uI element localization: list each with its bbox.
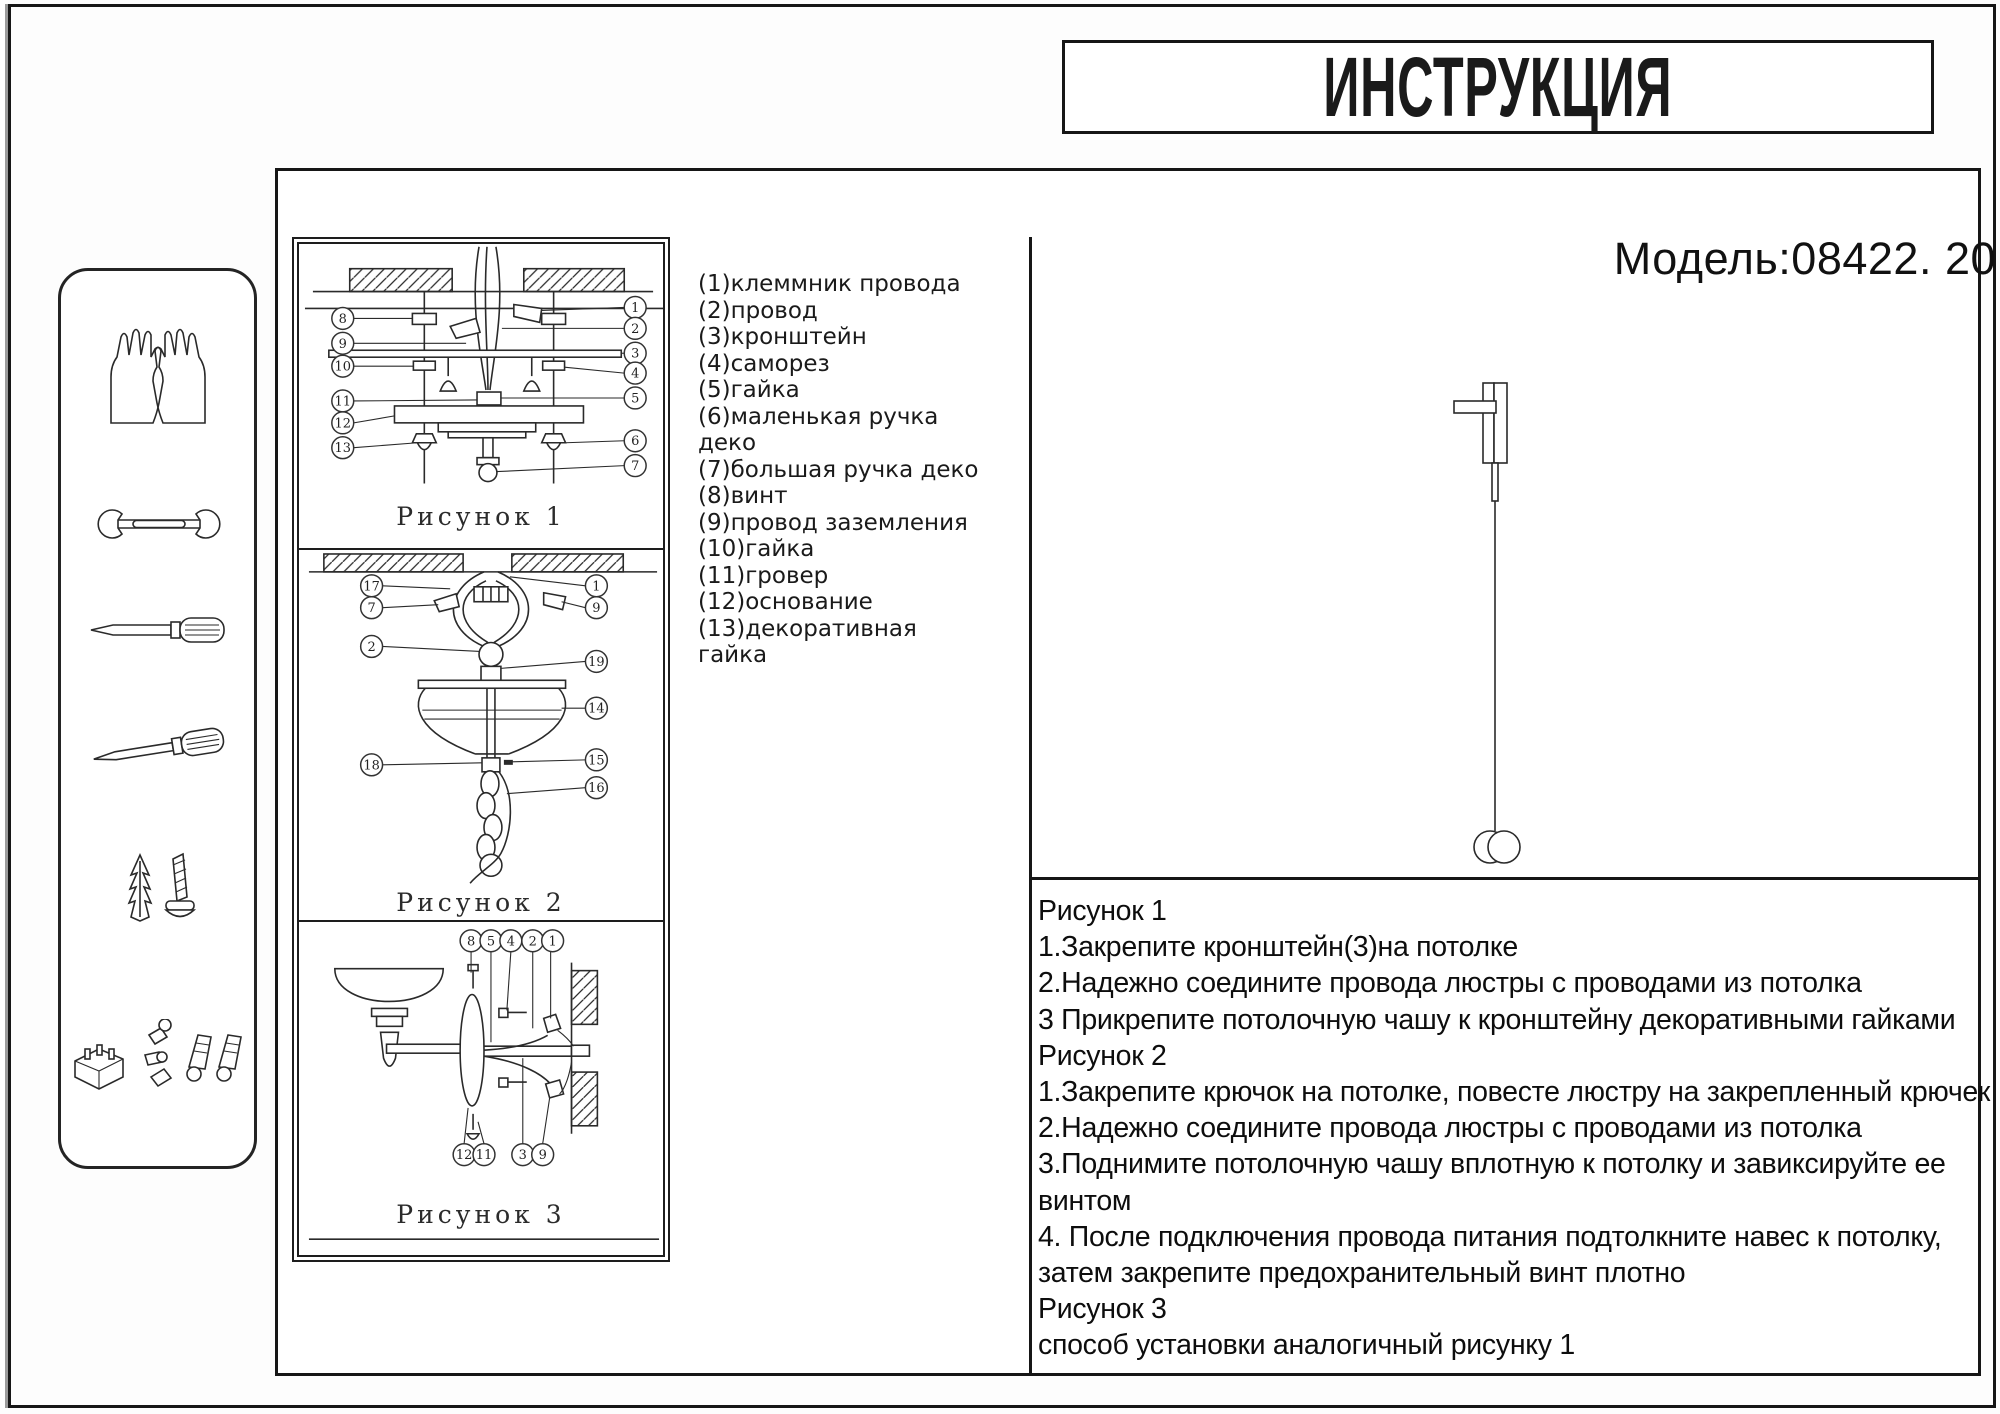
callout: 3 xyxy=(631,347,639,362)
callout: 10 xyxy=(335,360,351,375)
callout: 5 xyxy=(487,934,495,949)
vertical-divider xyxy=(1029,237,1032,1373)
part-line: деко xyxy=(698,430,1028,457)
callout: 12 xyxy=(335,416,351,431)
chain xyxy=(470,758,513,883)
canopy-base xyxy=(394,406,583,482)
parts-list: (1)клеммник провода (2)провод (3)кронште… xyxy=(698,271,1028,669)
callout: 9 xyxy=(592,601,600,616)
figure-3-caption: Рисунок 3 xyxy=(299,1200,663,1229)
callouts-bottom: 12 11 3 9 xyxy=(453,1144,553,1166)
instruction-line: способ установки аналогичный рисунку 1 xyxy=(1038,1327,1978,1363)
callout: 16 xyxy=(588,781,604,796)
installation-instructions: Рисунок 1 1.Закрепите кронштейн(3)на пот… xyxy=(1038,893,1978,1364)
figure-1-caption: Рисунок 1 xyxy=(299,502,663,531)
figure-2: 17 7 2 18 1 9 19 14 15 16 xyxy=(299,548,663,920)
instruction-line: 3.Поднимите потолочную чашу вплотную к п… xyxy=(1038,1146,1978,1182)
callouts-top: 8 5 4 2 1 xyxy=(460,930,563,952)
callout: 12 xyxy=(456,1148,472,1163)
callout: 2 xyxy=(631,322,639,337)
callout: 4 xyxy=(631,367,639,382)
part-line: (11)гровер xyxy=(698,563,1028,590)
callouts-left: 8 9 10 11 12 13 xyxy=(332,307,354,458)
instruction-line: Рисунок 1 xyxy=(1038,893,1978,929)
callouts-right: 1 9 19 14 15 16 xyxy=(585,575,607,799)
callout: 1 xyxy=(631,301,639,316)
hook-bracket xyxy=(434,572,565,680)
part-line: (1)клеммник провода xyxy=(698,271,1028,298)
instruction-line: 4. После подключения провода питания под… xyxy=(1038,1219,1978,1255)
part-line: (8)винт xyxy=(698,483,1028,510)
part-line: (13)декоративная xyxy=(698,616,1028,643)
ceiling-hatch xyxy=(309,554,657,572)
callout: 17 xyxy=(363,579,379,594)
callout: 6 xyxy=(631,434,639,449)
callout: 2 xyxy=(367,640,375,655)
callout: 9 xyxy=(539,1148,547,1163)
flat-screwdriver-icon xyxy=(87,613,229,647)
part-line: (6)маленькая ручка xyxy=(698,404,1028,431)
callout: 9 xyxy=(339,337,347,352)
callout: 7 xyxy=(367,601,375,616)
part-line: (10)гайка xyxy=(698,536,1028,563)
title-box: ИНСТРУКЦИЯ xyxy=(1062,40,1934,134)
figure-3: 8 5 4 2 1 12 11 3 9 xyxy=(299,920,663,1253)
part-line: (7)большая ручка деко xyxy=(698,457,1028,484)
part-line: (2)провод xyxy=(698,298,1028,325)
callout: 1 xyxy=(549,934,557,949)
instruction-line: Рисунок 2 xyxy=(1038,1038,1978,1074)
instruction-line: 1.Закрепите кронштейн(3)на потолке xyxy=(1038,929,1978,965)
callout: 8 xyxy=(467,934,475,949)
mounting-hardware-icon xyxy=(67,1019,249,1099)
instruction-line: 2.Надежно соедините провода люстры с про… xyxy=(1038,965,1978,1001)
instruction-line: затем закрепите предохранительный винт п… xyxy=(1038,1255,1978,1291)
callout: 18 xyxy=(363,758,379,773)
callout: 15 xyxy=(588,753,604,768)
gloves-icon xyxy=(97,319,219,429)
callout: 19 xyxy=(588,655,604,670)
callout: 4 xyxy=(507,934,515,949)
wrench-icon xyxy=(93,503,225,545)
callout: 1 xyxy=(592,579,600,594)
figures-box: 8 9 10 11 12 13 1 2 3 4 5 xyxy=(292,237,670,1262)
bracket xyxy=(329,350,621,405)
figure-1: 8 9 10 11 12 13 1 2 3 4 5 xyxy=(299,244,663,548)
content-box: 8 9 10 11 12 13 1 2 3 4 5 xyxy=(275,168,1981,1376)
callout: 2 xyxy=(529,934,537,949)
figure-2-caption: Рисунок 2 xyxy=(299,888,663,917)
callout: 3 xyxy=(519,1148,527,1163)
horizontal-divider xyxy=(1029,877,1978,880)
callout: 13 xyxy=(335,441,351,456)
instruction-line: 3 Прикрепите потолочную чашу к кронштейн… xyxy=(1038,1002,1978,1038)
part-line: (4)саморез xyxy=(698,351,1028,378)
phillips-screwdriver-icon xyxy=(87,723,229,775)
instruction-line: 1.Закрепите крючок на потолке, повесте л… xyxy=(1038,1074,1978,1110)
ceiling-hatch xyxy=(305,269,663,309)
callout: 14 xyxy=(588,702,604,717)
callout: 11 xyxy=(335,394,351,409)
callout: 5 xyxy=(631,391,639,406)
instruction-line: 2.Надежно соедините провода люстры с про… xyxy=(1038,1110,1978,1146)
instruction-line: винтом xyxy=(1038,1183,1978,1219)
part-line: (5)гайка xyxy=(698,377,1028,404)
instruction-line: Рисунок 3 xyxy=(1038,1291,1978,1327)
part-line: гайка xyxy=(698,642,1028,669)
callout: 8 xyxy=(339,312,347,327)
model-number: Модель:08422. 20 xyxy=(1034,233,1996,285)
callout: 7 xyxy=(631,459,639,474)
page-title: ИНСТРУКЦИЯ xyxy=(1324,39,1673,136)
canopy-bell xyxy=(418,680,565,758)
callout: 11 xyxy=(476,1148,492,1163)
instruction-sheet: ИНСТРУКЦИЯ xyxy=(0,0,2000,1414)
part-line: (9)провод заземления xyxy=(698,510,1028,537)
callouts-right: 1 2 3 4 5 6 7 xyxy=(624,297,646,477)
pendant-diagram xyxy=(1383,331,1683,891)
part-line: (3)кронштейн xyxy=(698,324,1028,351)
wall-anchor-screw-icon xyxy=(119,849,203,931)
tools-sidebar xyxy=(58,268,257,1169)
callouts-left: 17 7 2 18 xyxy=(361,575,383,776)
part-line: (12)основание xyxy=(698,589,1028,616)
